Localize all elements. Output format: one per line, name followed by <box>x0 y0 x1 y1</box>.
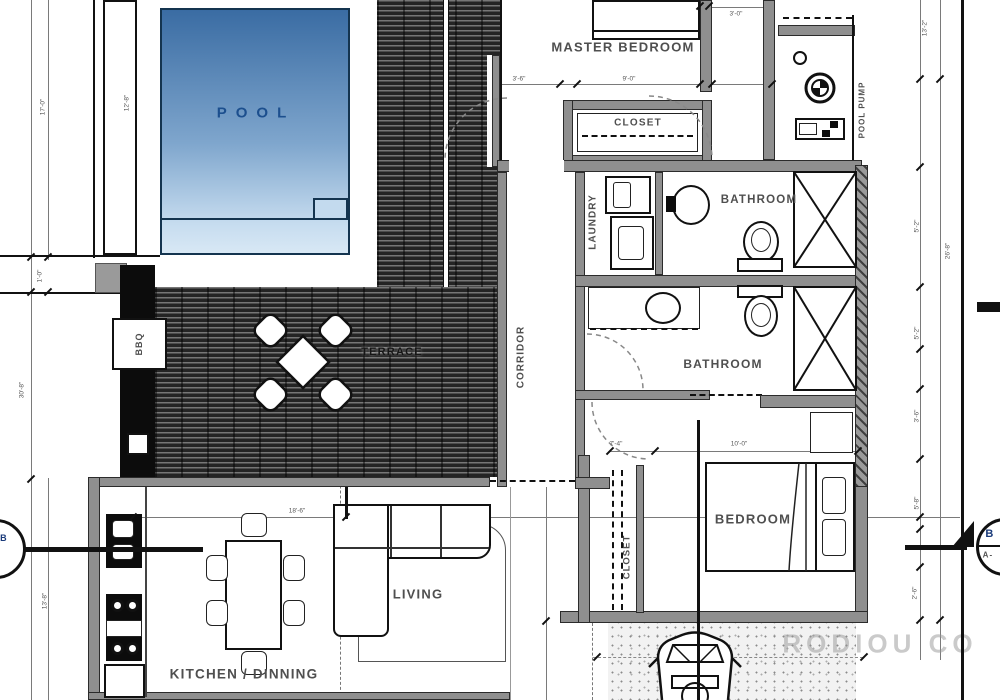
burner-1 <box>111 599 124 612</box>
master-window-wall <box>492 55 500 167</box>
burner-2 <box>126 599 139 612</box>
shower-1 <box>794 172 856 267</box>
room-label-corridor: CORRIDOR <box>516 326 527 388</box>
wall-pump-top <box>778 25 855 36</box>
room-label-master-bedroom: MASTER BEDROOM <box>551 40 694 55</box>
scale-bar <box>977 302 1000 312</box>
wall-closet-left <box>563 100 573 165</box>
room-label-laundry: LAUNDRY <box>588 194 599 250</box>
bbq-label: BBQ <box>134 333 144 356</box>
toilet-inner-bath2 <box>751 303 771 327</box>
room-label-bathroom-top: BATHROOM <box>721 194 797 206</box>
nightstand <box>810 412 853 453</box>
dim-label: 12'-8" <box>124 95 131 112</box>
watermark: RODIOU CO <box>782 629 977 660</box>
sink-faucet-bath1 <box>666 196 676 212</box>
pump-equipment-sq1 <box>830 121 838 128</box>
dim-label: 5'-8" <box>914 497 921 510</box>
bed-headboard-line <box>815 463 817 571</box>
master-left-line <box>500 0 502 160</box>
dim-label: 3'-6" <box>914 410 921 423</box>
sofa-seam-3 <box>335 547 489 549</box>
room-label-kitchen-dining: KITCHEN / DINNING <box>170 667 319 682</box>
dim-line-left-inner-top <box>48 0 49 260</box>
pool-pump-icon <box>806 74 834 102</box>
dim-line-left-outer <box>31 0 32 700</box>
driveway-dashed-line <box>592 623 593 700</box>
stove-gap <box>106 620 142 637</box>
section-bubble-left-label: B <box>0 533 8 543</box>
wall-house-left <box>88 477 100 700</box>
room-label-bedroom: BEDROOM <box>715 512 791 527</box>
master-bed <box>592 0 700 40</box>
wall-laundry-bath <box>655 172 663 275</box>
dim-label: 26'-8" <box>945 243 952 260</box>
washer-door <box>618 226 644 260</box>
wall-bedroom-topright <box>760 395 868 408</box>
wall-bedroom-bottom <box>560 611 868 623</box>
walkway-line-top <box>0 255 160 257</box>
room-label-master-closet: CLOSET <box>614 118 662 129</box>
section-bubble-right-top-label: B <box>985 528 994 540</box>
vanity-cabinet-dashed <box>590 328 698 330</box>
wall-corridor-left <box>497 172 507 487</box>
wall-exterior-hatched <box>855 165 868 487</box>
wall-kitchen-top <box>88 477 490 487</box>
wall-bedroom-top-dashed <box>690 394 762 396</box>
sink-icon-bath2 <box>645 292 681 324</box>
pump-right-line <box>852 15 854 160</box>
pillow-bottom <box>822 519 846 556</box>
counter-box <box>127 433 149 455</box>
left-wall-line <box>93 0 95 258</box>
dim-label: 10'-0" <box>731 441 748 448</box>
room-label-bedroom-closet: CLOSET <box>622 535 633 580</box>
pool-label: POOL <box>217 105 296 122</box>
dim-label: 30'-8" <box>19 382 26 399</box>
sofa-seam-1 <box>390 506 392 557</box>
dim-label: 5'-2" <box>914 327 921 340</box>
dim-label: 17'-0" <box>40 99 47 116</box>
wall-opening-corridor <box>509 160 564 172</box>
wall-closet2-right <box>636 465 644 613</box>
dim-label: 18'-6" <box>289 508 306 515</box>
dim-line-top <box>500 84 775 85</box>
dim-line-hall-vertical <box>546 487 547 700</box>
closet2-rod-1 <box>612 470 614 610</box>
dim-label: 9'-0" <box>623 76 636 83</box>
section-bubble-right-bottom-label: A- <box>983 551 994 560</box>
dim-stub-kitchen <box>345 487 348 519</box>
room-label-terrace: TERRACE <box>361 346 423 358</box>
dim-label: 3'-6" <box>513 76 526 83</box>
room-label-pool-pump: POOL PUMP <box>858 82 867 139</box>
dim-label: 1'-0" <box>37 270 44 283</box>
section-bubble-divider <box>979 545 1000 547</box>
deck-seam <box>443 0 449 287</box>
dim-label: 3'-0" <box>730 11 743 18</box>
section-line-vertical <box>697 420 700 700</box>
dining-chair-right1 <box>283 555 305 581</box>
hall-opening-dashed <box>490 480 575 482</box>
dim-label: 13'-2" <box>922 20 929 37</box>
dining-table <box>225 540 282 650</box>
living-boundary-line <box>510 487 511 700</box>
dim-label: 5'-2" <box>914 220 921 233</box>
pump-opening-dashed <box>783 17 852 19</box>
burner-4 <box>126 642 139 655</box>
pool-step <box>313 198 348 220</box>
dining-chair-right2 <box>283 600 305 626</box>
dim-line-left-inner-bottom <box>48 478 49 700</box>
pump-equipment-sq2 <box>822 130 830 137</box>
master-bed-line <box>594 30 698 32</box>
vanity-bath2 <box>588 287 700 329</box>
wall-hall-stub <box>575 477 610 489</box>
section-bubble-right <box>976 518 1000 576</box>
wall-corridor-right <box>575 172 585 487</box>
planter-box <box>103 0 137 255</box>
kitchen-sink-bowl1 <box>112 520 134 538</box>
wall-house-bottom <box>88 692 510 700</box>
pump-equipment-left <box>799 123 817 135</box>
wall-closet-right <box>702 100 712 165</box>
floor-plan: POOL BBQ RODIOU CO <box>0 0 1000 700</box>
dining-chair-left2 <box>206 600 228 626</box>
dim-line-right-outer <box>940 0 941 660</box>
kitchen-cabinet <box>104 664 145 698</box>
toilet-inner-bath1 <box>751 228 771 252</box>
toilet-tank-bath1 <box>737 258 783 272</box>
wall-master-right <box>700 0 712 92</box>
property-line <box>961 0 964 700</box>
dining-chair-top <box>241 513 267 537</box>
room-label-bathroom-bottom: BATHROOM <box>683 357 762 371</box>
pillow-top <box>822 477 846 514</box>
pump-valve-icon <box>793 51 807 65</box>
section-line-left <box>0 547 203 552</box>
shower-2 <box>794 287 856 390</box>
wall-bath-divider <box>575 275 862 287</box>
closet1-rod-dashed <box>582 135 693 137</box>
dining-chair-left1 <box>206 555 228 581</box>
door-arc-bathroom2 <box>587 334 643 390</box>
driveway-dim-dashed <box>593 657 863 658</box>
wall-closet-top <box>563 100 712 110</box>
sink-icon-bath1 <box>672 185 710 225</box>
dim-label: 13'-8" <box>42 593 49 610</box>
burner-3 <box>111 642 124 655</box>
laundry-sink-basin <box>613 182 631 208</box>
section-bubble-left <box>0 519 26 579</box>
sofa-seam-2 <box>440 506 442 557</box>
dim-label: 2'-6" <box>912 587 919 600</box>
counter-edge-line <box>145 487 147 697</box>
room-label-living: LIVING <box>393 587 444 602</box>
sofa-chaise-section <box>333 504 389 637</box>
terrace-deck <box>155 287 500 477</box>
section-line-right <box>905 545 967 550</box>
